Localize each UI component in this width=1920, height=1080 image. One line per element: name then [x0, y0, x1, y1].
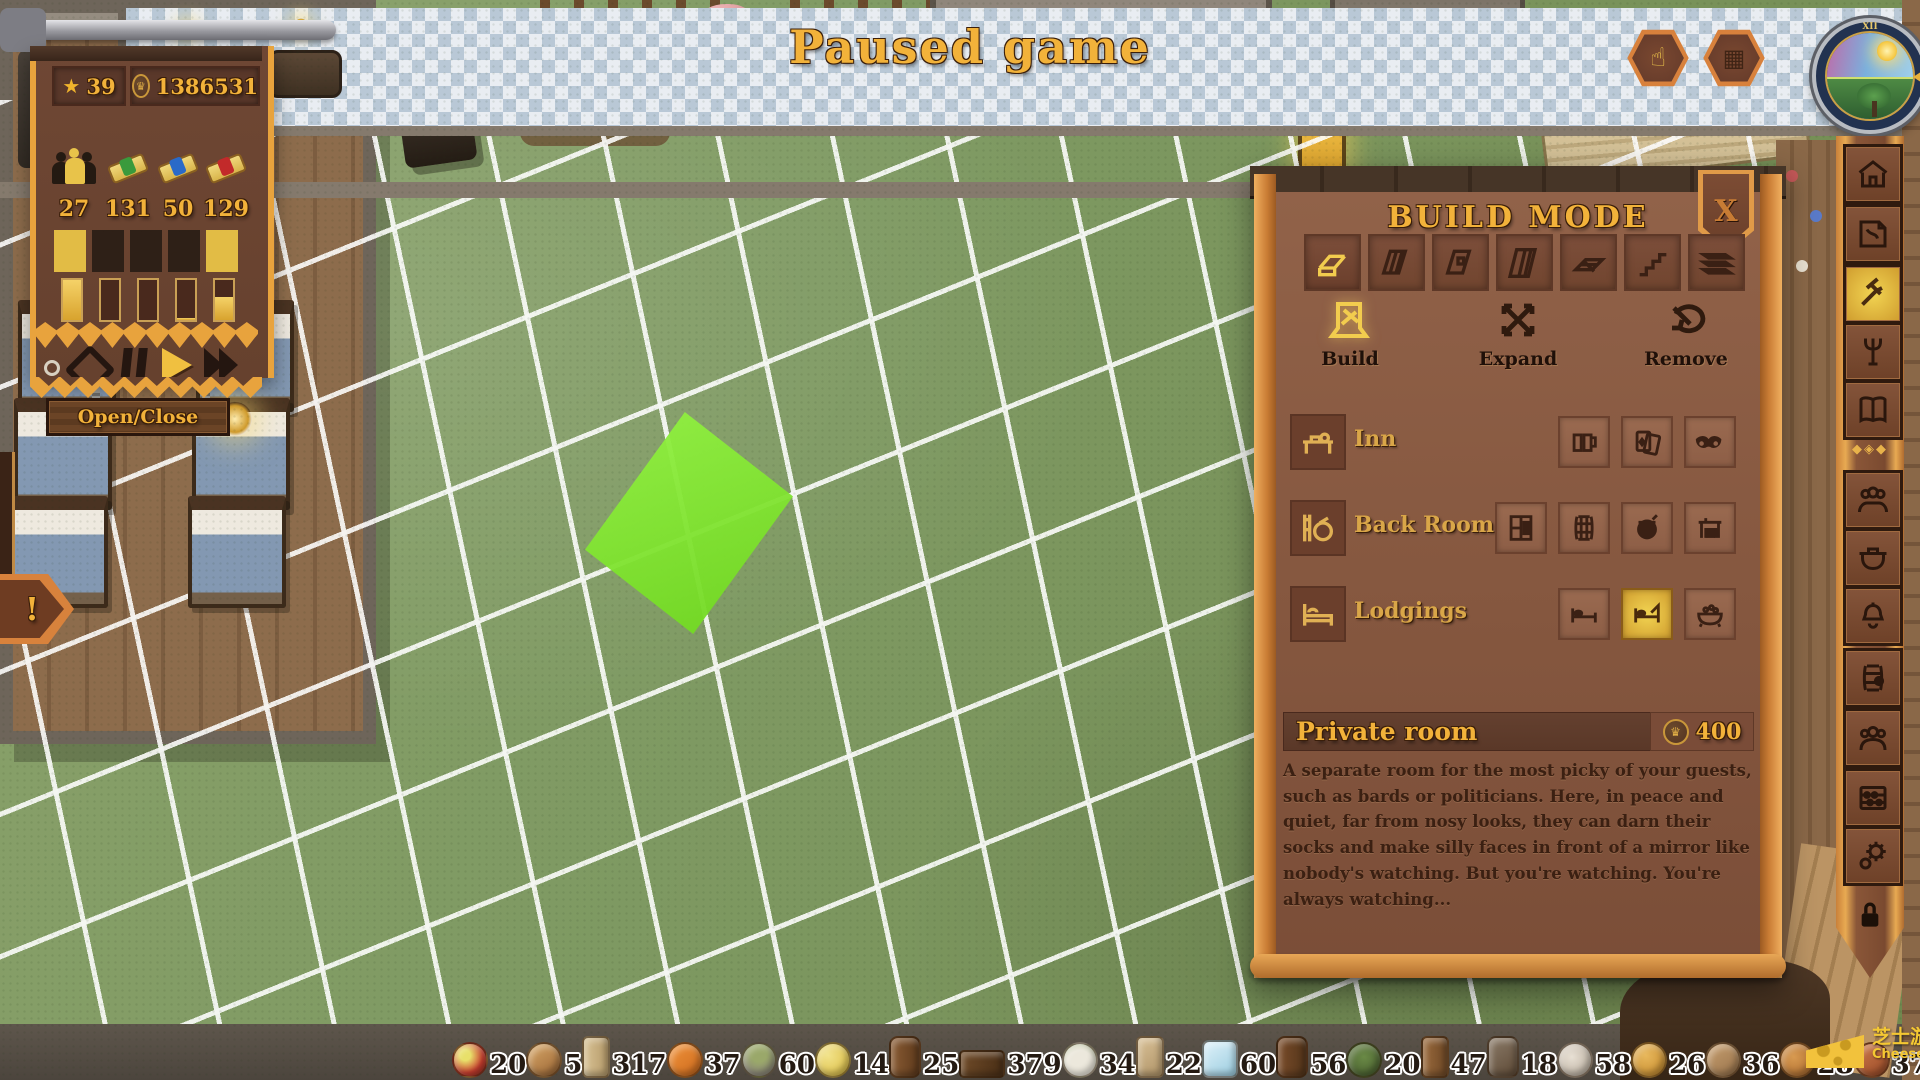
- bathtub-icon: [1693, 597, 1727, 631]
- resource-banner: ★ 39 ♛ 1386531 27 131 50 129: [30, 46, 274, 378]
- candelabra-icon: [1855, 334, 1891, 370]
- contracts-green-count: 131: [102, 196, 154, 222]
- build-mode-button[interactable]: Build: [1290, 296, 1410, 370]
- tab-windows[interactable]: [1432, 234, 1489, 291]
- clock-face: [1825, 31, 1915, 121]
- hand-icon: ☝: [1650, 43, 1666, 73]
- contracts-blue-count: 50: [152, 196, 204, 222]
- grain-mortar-icon: [741, 1042, 777, 1078]
- lock-icon: [1850, 892, 1890, 938]
- remove-icon: [1662, 296, 1710, 344]
- alert-exclamation: !: [25, 590, 39, 628]
- category-lodgings: Lodgings: [1290, 586, 1752, 640]
- barrel-icon: [889, 1036, 921, 1078]
- item-cabaret[interactable]: [1684, 416, 1736, 468]
- tree-trunk: [1872, 101, 1877, 117]
- panel-bottom-curl: [1250, 954, 1786, 978]
- mode-row: Build Expand Remove: [1290, 296, 1746, 376]
- beer-keg-icon: [1276, 1036, 1308, 1078]
- staff-portrait-guard[interactable]: [206, 230, 238, 272]
- staff-gauge: [175, 278, 197, 322]
- item-cellar[interactable]: [1558, 502, 1610, 554]
- pause-status-text: Paused game: [760, 20, 1180, 74]
- toolbar-service-button[interactable]: [1843, 586, 1903, 646]
- coin-icon: ♛: [132, 74, 150, 98]
- tab-rooms[interactable]: [1304, 234, 1361, 291]
- speed-indicator-dot: [44, 360, 60, 376]
- item-description: A separate room for the most picky of yo…: [1283, 758, 1753, 912]
- back-rooms-category-icon[interactable]: [1290, 500, 1346, 556]
- abacus-icon: [1855, 780, 1891, 816]
- blueprint-map-icon: [1855, 216, 1891, 252]
- staff-gauge: [99, 278, 121, 322]
- sofa: [268, 50, 342, 98]
- blue-scroll-icon: [157, 153, 199, 185]
- cooking-pot-icon: [1855, 540, 1891, 576]
- zigzag-divider: [34, 322, 258, 348]
- floor-plan-icon: ▦: [1723, 44, 1746, 72]
- tab-exterior-walls[interactable]: [1496, 234, 1553, 291]
- clock-numeral: XII: [1816, 22, 1920, 32]
- green-scroll-icon: [107, 153, 149, 185]
- timber-icon: [582, 1036, 610, 1078]
- lodgings-category-icon[interactable]: [1290, 586, 1346, 642]
- lit-doorway: [1298, 70, 1346, 174]
- staff-gauge: [213, 278, 235, 322]
- toolbar-ornament: ◆◈◆: [1836, 442, 1904, 457]
- build-tabs: [1304, 234, 1745, 291]
- resource-beer-keg: 56: [1276, 1036, 1346, 1078]
- private-bed-icon: [1630, 597, 1664, 631]
- staff-portrait-innkeeper[interactable]: [54, 230, 86, 272]
- inn-category-icon[interactable]: [1290, 414, 1346, 470]
- item-game-room[interactable]: [1621, 416, 1673, 468]
- workbench-icon: [1693, 511, 1727, 545]
- clay-bowls-icon: [1705, 1042, 1741, 1078]
- guests-count: 27: [48, 196, 100, 222]
- building-top-right: [1330, 0, 1525, 71]
- item-tavern-hall[interactable]: [1558, 416, 1610, 468]
- mushrooms-icon: [1557, 1042, 1593, 1078]
- expand-mode-button[interactable]: Expand: [1458, 296, 1578, 370]
- staff-portrait-server[interactable]: [130, 230, 162, 272]
- staff-portrait-maid[interactable]: [168, 230, 200, 272]
- money-value: 1386531: [156, 74, 258, 99]
- item-pantry[interactable]: [1495, 502, 1547, 554]
- bed-icon: [1567, 597, 1601, 631]
- dirt-patch: [520, 112, 670, 146]
- pantry-icon: [1504, 511, 1538, 545]
- panel-left-rail: [1254, 174, 1276, 978]
- resource-grain: 60: [741, 1042, 815, 1078]
- resource-apples: 20: [452, 1042, 526, 1078]
- resource-bread: 5: [526, 1042, 582, 1078]
- remove-mode-button[interactable]: Remove: [1626, 296, 1746, 370]
- bread-icon: [526, 1042, 562, 1078]
- remove-mode-label: Remove: [1626, 348, 1746, 370]
- expand-mode-label: Expand: [1458, 348, 1578, 370]
- reputation-value: 39: [86, 74, 115, 99]
- pig: [700, 4, 752, 34]
- day-night-clock[interactable]: XII: [1812, 18, 1920, 134]
- seed-sack-icon: [1136, 1036, 1164, 1078]
- carrots-icon: [667, 1042, 703, 1078]
- item-workshop[interactable]: [1684, 502, 1736, 554]
- sun-icon: [1877, 41, 1897, 61]
- guests-stat: [48, 150, 100, 184]
- ice-block-icon: [1202, 1040, 1238, 1078]
- resource-seed-sack: 22: [1136, 1036, 1202, 1078]
- cost-box: ♛ 400: [1650, 712, 1754, 751]
- butter-churn-icon: [1421, 1036, 1449, 1078]
- item-kitchen[interactable]: [1621, 502, 1673, 554]
- cheese-icon: [815, 1042, 851, 1078]
- resource-ice: 60: [1202, 1040, 1276, 1078]
- coin-icon: ♛: [1663, 719, 1689, 745]
- wood-edge: [1902, 0, 1920, 1080]
- service-bell-icon: [1855, 598, 1891, 634]
- bed: [188, 496, 286, 608]
- fence: [540, 0, 720, 46]
- fast-forward-button[interactable]: [208, 348, 238, 382]
- close-x-label: X: [1714, 194, 1737, 229]
- category-back-rooms: Back Rooms: [1290, 500, 1752, 554]
- gears-icon: [1855, 838, 1891, 874]
- build-mode-panel: BUILD MODE X: [1250, 166, 1786, 978]
- toolbar-kitchen-button[interactable]: [1843, 528, 1903, 588]
- build-mode-label: Build: [1290, 348, 1410, 370]
- resource-barrel: 25: [889, 1036, 959, 1078]
- cheese-logo-icon: [1806, 1022, 1864, 1068]
- toolbar-inn-button[interactable]: [1843, 144, 1903, 204]
- toolbar-finances-button[interactable]: [1843, 768, 1903, 828]
- contracts-green-stat: [102, 150, 154, 178]
- resource-tableware: 36: [1705, 1042, 1779, 1078]
- open-book-icon: [1855, 392, 1891, 428]
- main-toolbar: ◆◈◆: [1836, 136, 1904, 978]
- supply-barrel-icon: [1855, 660, 1891, 696]
- resource-spring-onion: 34: [1062, 1042, 1136, 1078]
- inn-category-label: Inn: [1354, 426, 1396, 452]
- toolbar-guests-button[interactable]: [1843, 708, 1903, 768]
- resource-herbs: 20: [1346, 1042, 1420, 1078]
- money-box: ♛ 1386531: [130, 66, 260, 106]
- resource-timber: 317: [582, 1036, 666, 1078]
- toolbar-lock-emblem: [1850, 892, 1890, 938]
- vinegar-kegs-icon: [1487, 1036, 1519, 1078]
- tab-roofs[interactable]: [1688, 234, 1745, 291]
- sword-decoration: [0, 20, 336, 40]
- pause-button[interactable]: [122, 348, 148, 382]
- toolbar-furnishings-button[interactable]: [1843, 322, 1903, 382]
- apples-icon: [452, 1042, 488, 1078]
- selected-tile-highlight[interactable]: [585, 412, 793, 634]
- people-icon: [52, 150, 96, 184]
- firewood-icon: [959, 1050, 1005, 1078]
- resource-onions: 26: [1631, 1042, 1705, 1078]
- resource-bar: 20 5 317 37 60 14 25 379 34 22 60 56 20 …: [452, 1022, 1796, 1078]
- build-icon: [1326, 296, 1374, 344]
- watermark: 芝士游戏~ CheeseGame.org: [1806, 1022, 1920, 1068]
- cauldron-icon: [1630, 511, 1664, 545]
- toolbar-settings-button[interactable]: [1843, 826, 1903, 886]
- onion-icon: [1631, 1042, 1667, 1078]
- game-screen: Paused game ★ 39 ♛ 1386531 27 131 50 129: [0, 0, 1920, 1080]
- guests-icon: [1855, 720, 1891, 756]
- back-rooms-category-label: Back Rooms: [1354, 512, 1506, 538]
- watermark-site-text: CheeseGame.org: [1872, 1048, 1920, 1063]
- open-close-button[interactable]: Open/Close: [46, 398, 230, 436]
- clock-pointer: [1913, 68, 1920, 86]
- toolbar-blueprints-button[interactable]: [1843, 204, 1903, 264]
- lodgings-category-label: Lodgings: [1354, 598, 1467, 624]
- cart: [398, 101, 477, 168]
- toolbar-build-button[interactable]: [1843, 264, 1903, 324]
- mask-icon: [1693, 425, 1727, 459]
- build-hammer-icon: [1855, 276, 1891, 312]
- panel-right-rail: [1760, 174, 1782, 978]
- toolbar-staff-button[interactable]: [1843, 470, 1903, 530]
- selected-item-name: Private room: [1283, 712, 1655, 751]
- toolbar-ledger-button[interactable]: [1843, 380, 1903, 440]
- staff-gauge: [137, 278, 159, 322]
- staff-people-icon: [1855, 482, 1891, 518]
- staff-portrait-cook[interactable]: [92, 230, 124, 272]
- reputation-box: ★ 39: [52, 66, 126, 106]
- category-inn: Inn: [1290, 414, 1752, 468]
- playing-cards-icon: [1630, 425, 1664, 459]
- beer-mugs-icon: [1567, 425, 1601, 459]
- inn-building-icon: [1855, 156, 1891, 192]
- resource-butter-churn: 47: [1421, 1036, 1487, 1078]
- play-button[interactable]: [162, 348, 192, 382]
- watermark-cn-text: 芝士游戏~: [1872, 1027, 1920, 1049]
- spring-onion-icon: [1062, 1042, 1098, 1078]
- cost-value: 400: [1696, 719, 1742, 745]
- contracts-red-stat: [200, 150, 252, 178]
- resource-cheese: 14: [815, 1042, 889, 1078]
- herb-bowl-icon: [1346, 1042, 1382, 1078]
- toolbar-supplies-button[interactable]: [1843, 648, 1903, 708]
- resource-firewood: 379: [959, 1050, 1061, 1078]
- expand-icon: [1494, 296, 1542, 344]
- item-bathhouse[interactable]: [1684, 588, 1736, 640]
- item-private-room[interactable]: [1621, 588, 1673, 640]
- staff-gauge: [61, 278, 83, 322]
- red-scroll-icon: [205, 153, 247, 185]
- item-common-bedroom[interactable]: [1558, 588, 1610, 640]
- resource-vinegar: 18: [1487, 1036, 1557, 1078]
- barrel-icon: [1567, 511, 1601, 545]
- contracts-blue-stat: [152, 150, 204, 178]
- tab-stairs[interactable]: [1624, 234, 1681, 291]
- tab-interior-walls[interactable]: [1368, 234, 1425, 291]
- resource-mushrooms: 58: [1557, 1042, 1631, 1078]
- star-icon: ★: [62, 76, 80, 96]
- contracts-red-count: 129: [200, 196, 252, 222]
- banner-rod: [30, 46, 262, 61]
- resource-carrots: 37: [667, 1042, 741, 1078]
- tab-floors[interactable]: [1560, 234, 1617, 291]
